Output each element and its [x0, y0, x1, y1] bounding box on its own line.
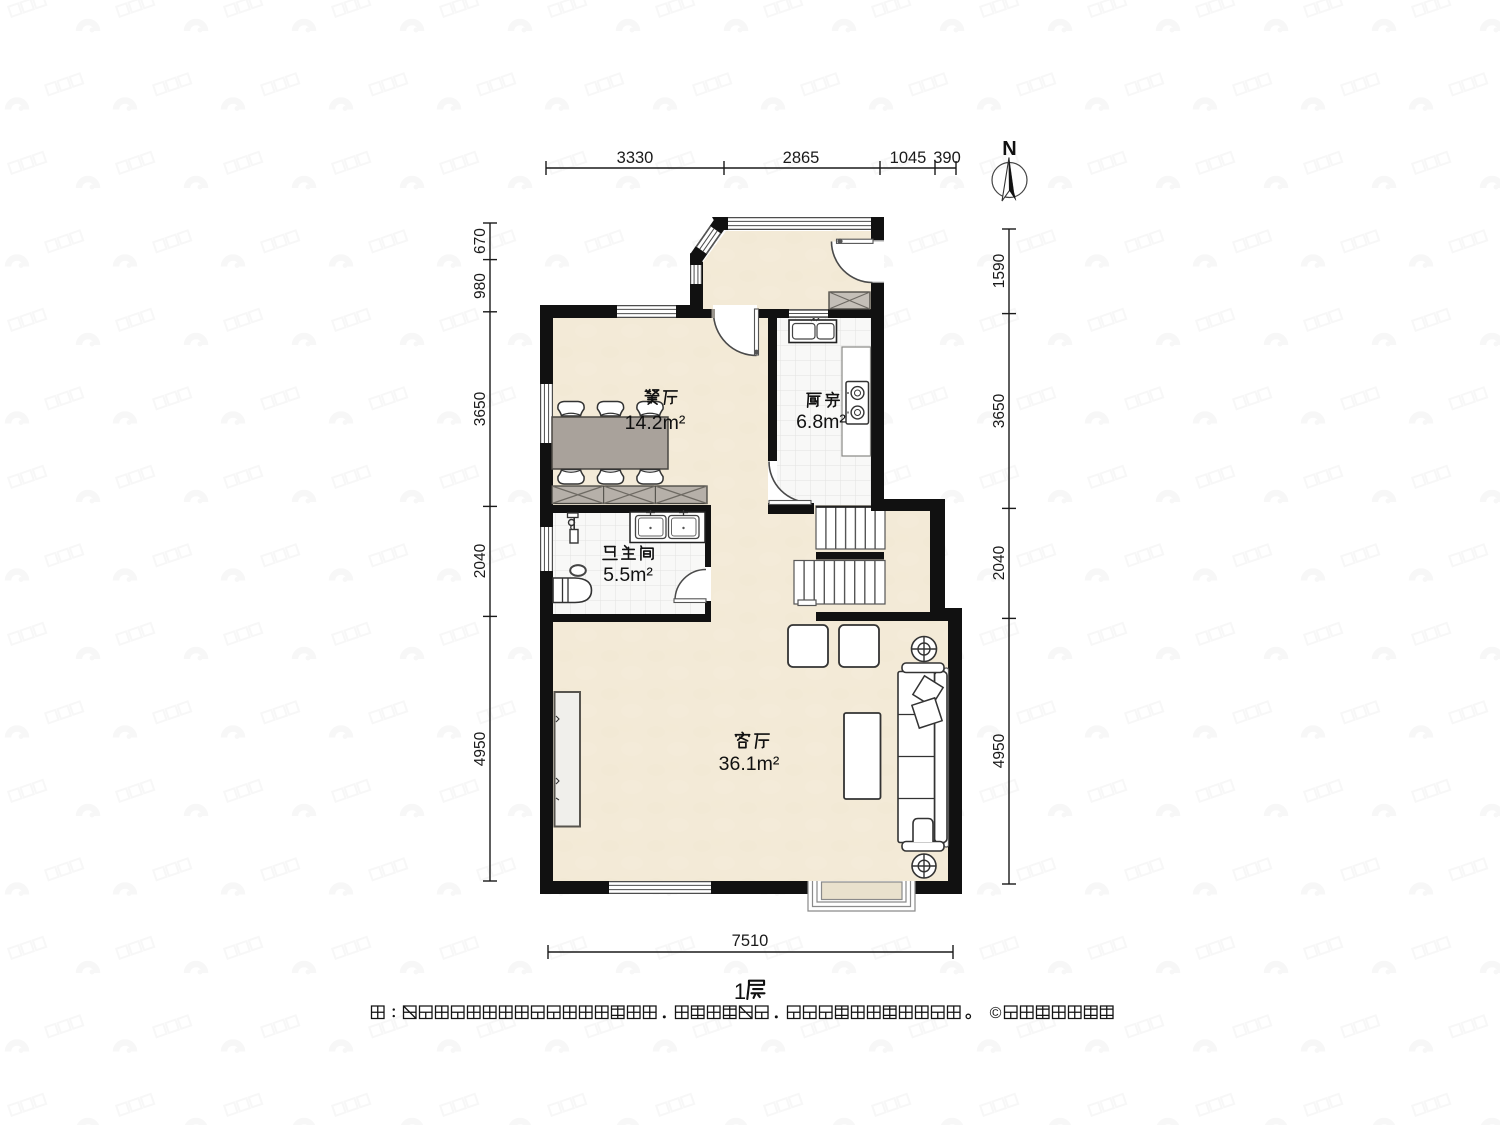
svg-text:14.2m²: 14.2m² [625, 412, 686, 434]
svg-text:390: 390 [933, 149, 961, 167]
svg-text:1: 1 [734, 979, 746, 1004]
svg-text:980: 980 [472, 273, 489, 299]
svg-text:2040: 2040 [472, 543, 489, 578]
svg-text:4950: 4950 [991, 733, 1008, 768]
svg-text:7510: 7510 [732, 932, 769, 950]
svg-text:36.1m²: 36.1m² [719, 753, 780, 775]
svg-text:3650: 3650 [472, 391, 489, 426]
svg-text:3330: 3330 [617, 149, 654, 167]
svg-text:1045: 1045 [890, 149, 927, 167]
svg-text:670: 670 [472, 228, 489, 254]
svg-text:2865: 2865 [783, 149, 820, 167]
svg-text:N: N [1002, 138, 1016, 160]
svg-text:6.8m²: 6.8m² [796, 411, 846, 433]
svg-text:4950: 4950 [472, 731, 489, 766]
svg-text:2040: 2040 [991, 545, 1008, 580]
svg-text:5.5m²: 5.5m² [603, 564, 653, 586]
svg-text:©: © [990, 1005, 1002, 1022]
svg-text:3650: 3650 [991, 393, 1008, 428]
svg-text:1590: 1590 [991, 253, 1008, 288]
